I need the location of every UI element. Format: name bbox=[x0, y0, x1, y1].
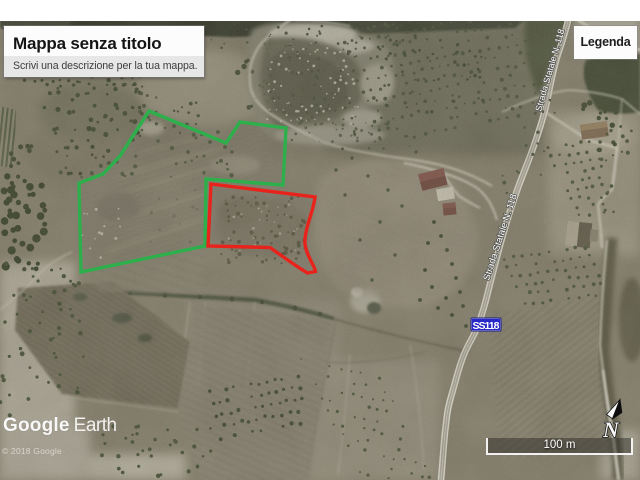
svg-text:SS118: SS118 bbox=[473, 320, 500, 332]
